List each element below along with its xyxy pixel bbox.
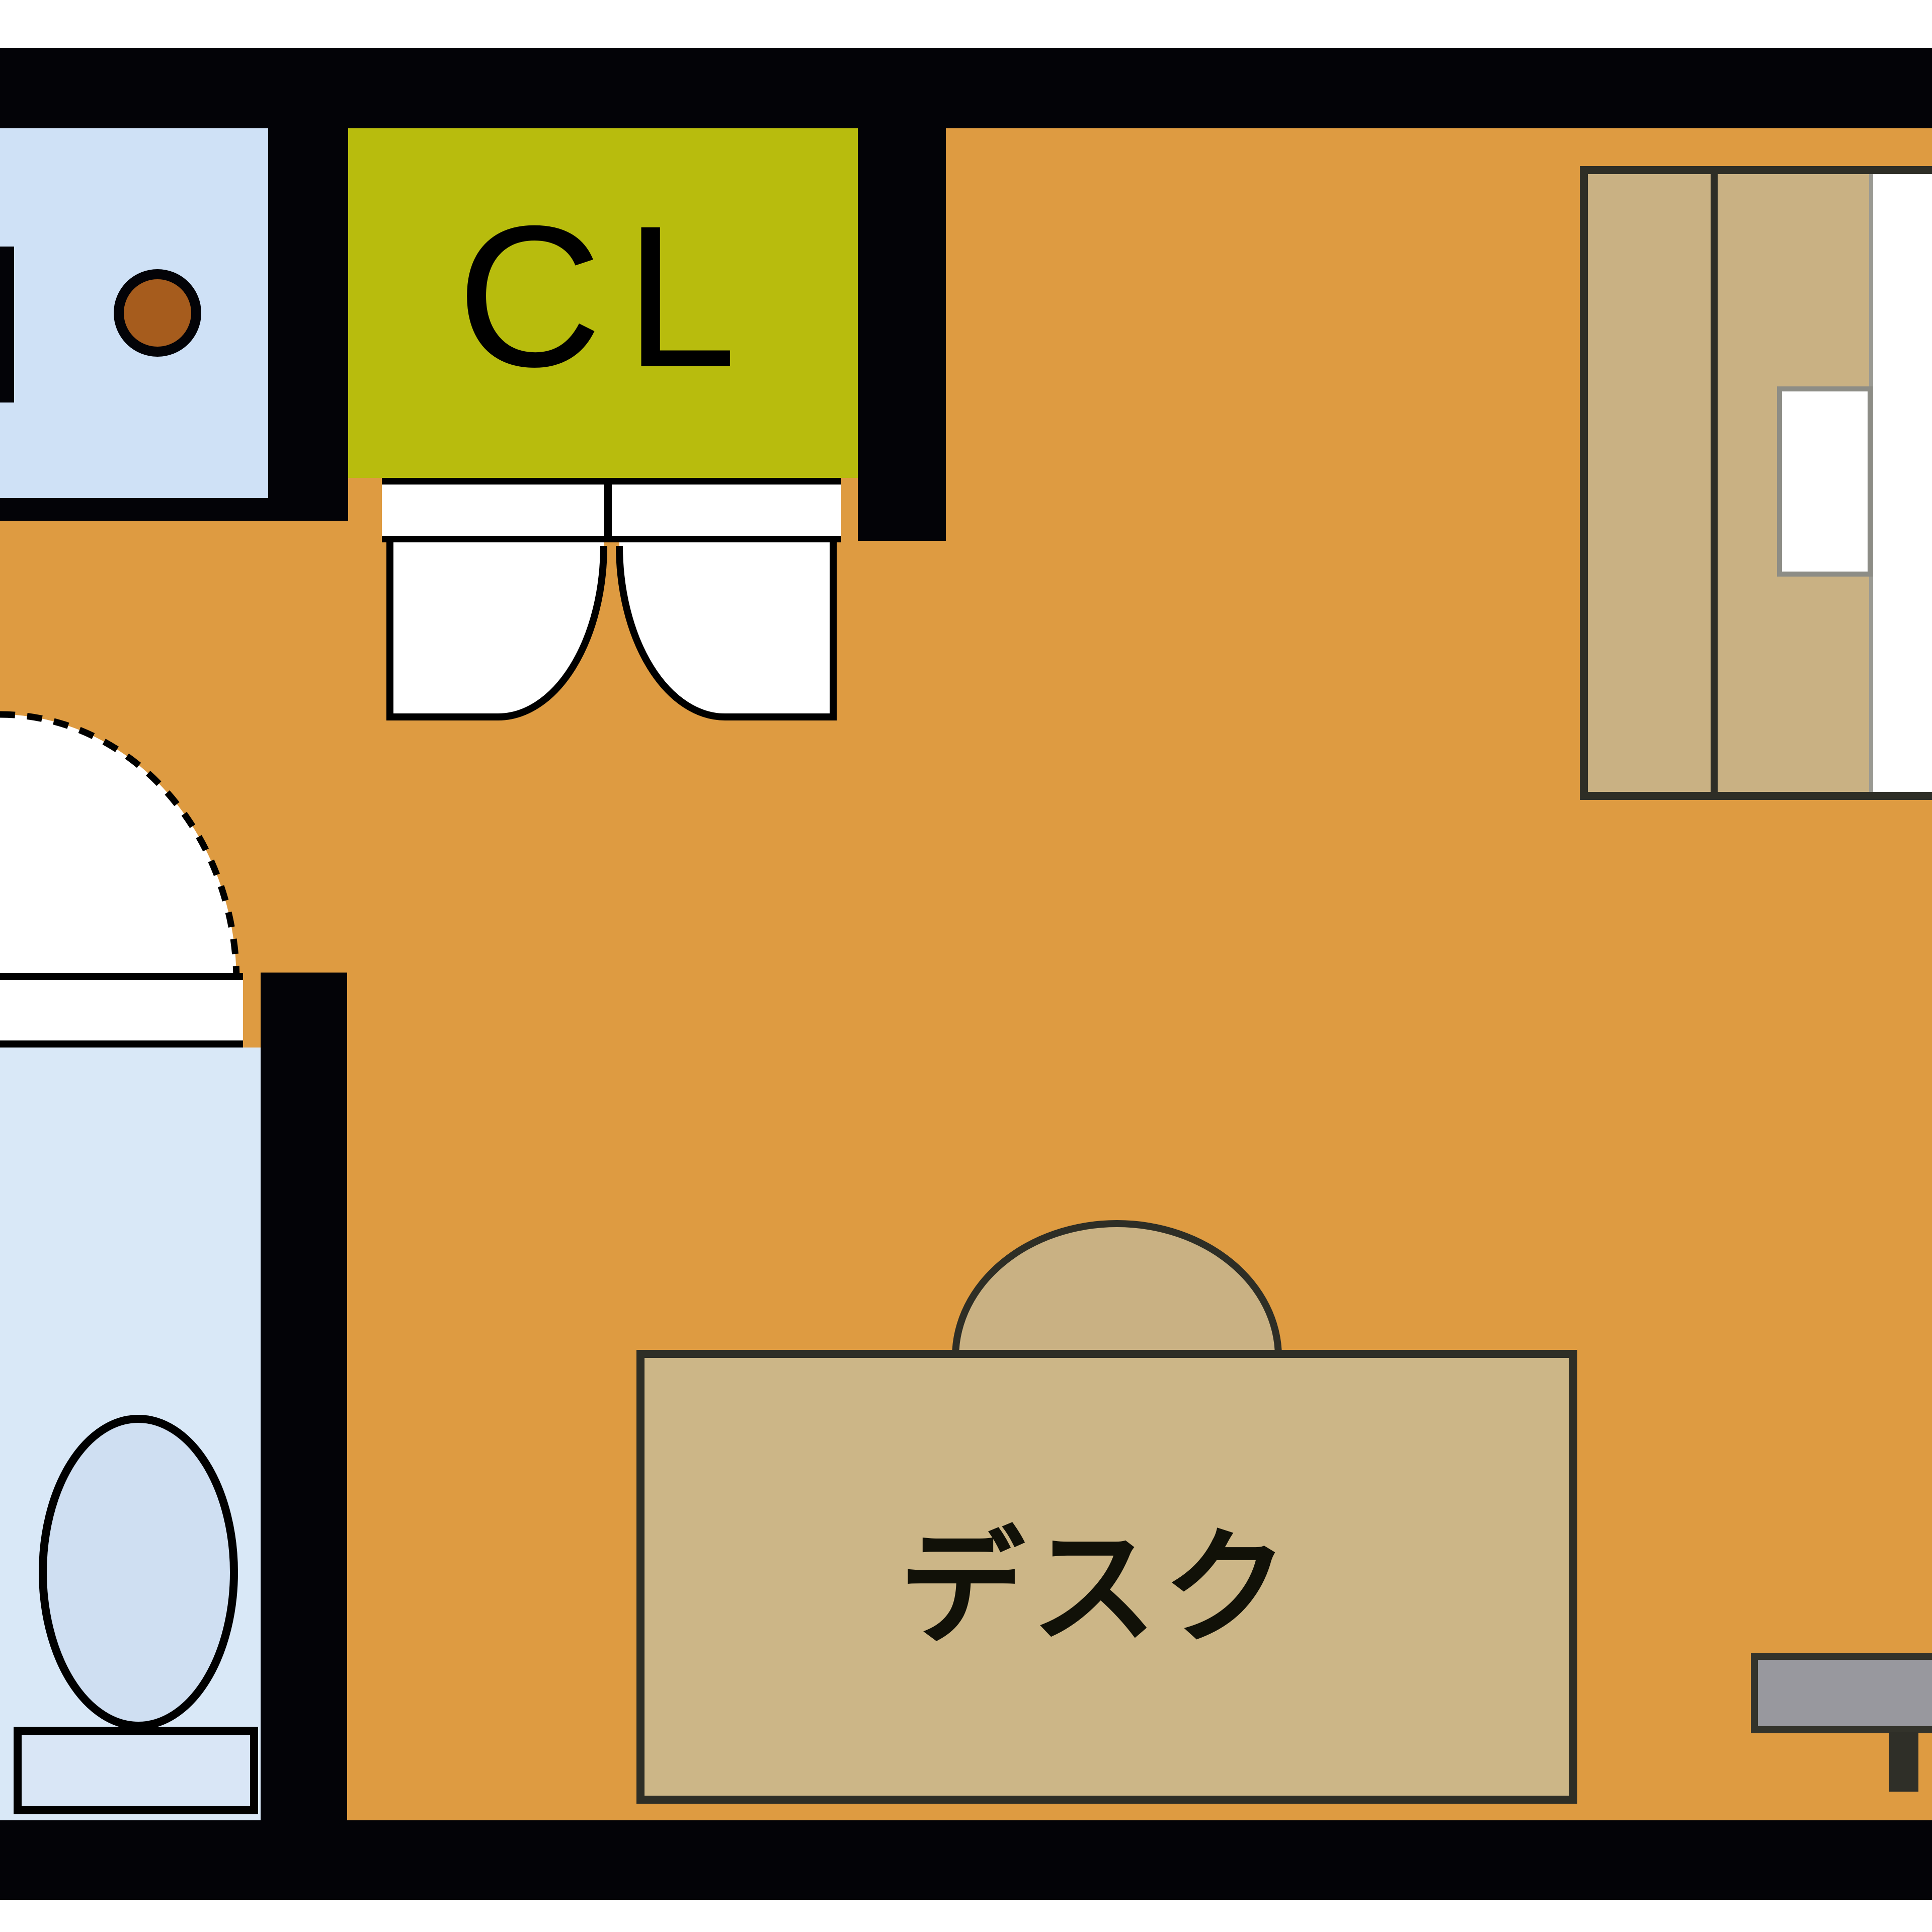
closet-area: CL [348,128,858,478]
tv-board-leg [1889,1732,1918,1792]
bed-headboard-divider [1711,174,1718,792]
wall-top [0,48,1932,128]
entry-door-leaf [0,973,243,1048]
bed-sheet [1869,174,1932,792]
wall-pier-kitchen [268,128,348,521]
wall-bathroom-partition [261,973,347,1820]
closet-door-divider [604,478,612,542]
wall-bottom [0,1820,1932,1900]
desk: デスク [636,1350,1577,1804]
floor-plan: CL デスク [0,0,1932,1932]
burner-icon [114,269,201,357]
closet-label: CL [457,196,759,397]
closet-door-swing-icon [382,542,841,729]
toilet-icon [0,1389,261,1820]
kitchen-counter-icon [0,247,14,403]
desk-label: デスク [899,1486,1295,1668]
wall-pier-closet [858,128,946,541]
pillow-icon [1777,386,1873,577]
tv-board [1751,1653,1932,1733]
